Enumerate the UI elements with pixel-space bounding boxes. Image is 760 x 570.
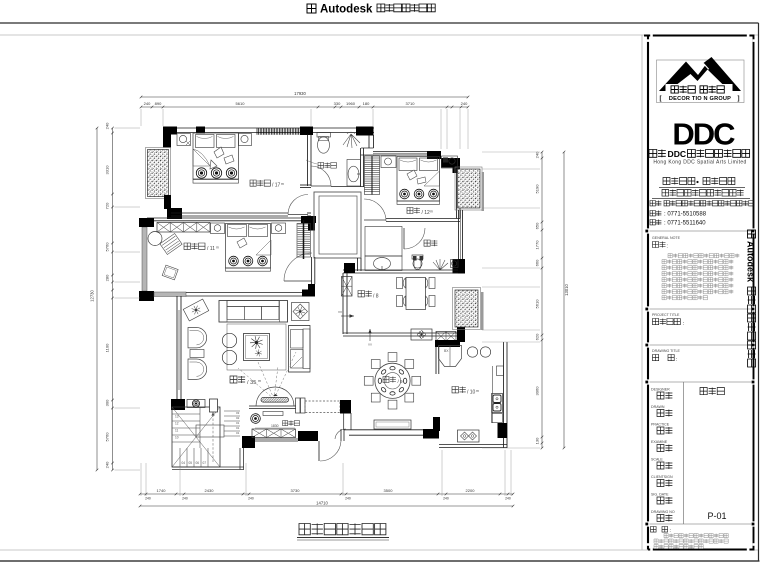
svg-text:XX: XX xyxy=(368,343,372,347)
svg-text:CLIENTSIGN: CLIENTSIGN xyxy=(651,475,673,479)
svg-text:: 0771-5510588: : 0771-5510588 xyxy=(664,212,707,218)
svg-text:5760: 5760 xyxy=(105,432,110,442)
svg-text:3730: 3730 xyxy=(291,488,301,493)
svg-text:05: 05 xyxy=(189,461,193,465)
svg-text:/ 35: / 35 xyxy=(247,380,256,386)
svg-text:1740: 1740 xyxy=(157,488,167,493)
svg-text:m: m xyxy=(216,246,219,250)
svg-text:01: 01 xyxy=(236,421,240,425)
svg-text:1830: 1830 xyxy=(271,424,279,428)
svg-text:]: ] xyxy=(738,96,740,102)
svg-text:280: 280 xyxy=(105,274,110,281)
svg-text:720: 720 xyxy=(105,202,110,209)
svg-text:240: 240 xyxy=(182,497,188,501)
svg-text:DDC: DDC xyxy=(668,149,687,159)
svg-text:XX: XX xyxy=(338,310,342,314)
svg-text:01: 01 xyxy=(236,426,240,430)
svg-text:300: 300 xyxy=(105,399,110,406)
svg-text:m: m xyxy=(476,389,479,393)
svg-text:650: 650 xyxy=(535,222,540,229)
svg-text:240: 240 xyxy=(248,497,254,501)
svg-text:m: m xyxy=(430,210,433,214)
svg-text:DRAWING TITLE: DRAWING TITLE xyxy=(652,349,681,353)
svg-text:3310: 3310 xyxy=(105,165,110,175)
svg-text:DDC: DDC xyxy=(672,117,735,152)
svg-text:/ 17: / 17 xyxy=(272,183,281,189)
svg-text::: : xyxy=(667,244,668,250)
svg-text:890: 890 xyxy=(155,101,162,106)
svg-text:/ 9: / 9 xyxy=(398,379,404,384)
svg-text:240: 240 xyxy=(505,497,511,501)
svg-text:/ 12: / 12 xyxy=(422,210,431,216)
svg-text:m: m xyxy=(258,379,261,383)
svg-text:DRAWING NO: DRAWING NO xyxy=(651,510,675,514)
svg-text:240: 240 xyxy=(144,101,151,106)
svg-text:1100: 1100 xyxy=(105,343,110,352)
svg-text:DRAWN: DRAWN xyxy=(651,405,665,409)
svg-text:3060: 3060 xyxy=(535,386,540,396)
svg-text:3710: 3710 xyxy=(406,101,416,106)
svg-text:GENERAL NOTE: GENERAL NOTE xyxy=(652,236,681,240)
svg-text:DECOR TIO N GROUP: DECOR TIO N GROUP xyxy=(669,96,731,102)
svg-text:660: 660 xyxy=(535,259,540,266)
svg-text:5610: 5610 xyxy=(535,299,540,309)
svg-text:P-01: P-01 xyxy=(707,511,726,521)
svg-text:10: 10 xyxy=(175,436,179,440)
svg-text:13010: 13010 xyxy=(564,284,569,296)
svg-text:13: 13 xyxy=(175,415,179,419)
svg-text:03: 03 xyxy=(236,411,240,415)
svg-text:130: 130 xyxy=(535,437,540,444)
svg-text:240: 240 xyxy=(145,497,151,501)
svg-text:m: m xyxy=(281,182,284,186)
svg-text:/ 8: / 8 xyxy=(373,294,379,300)
svg-text:3500: 3500 xyxy=(384,488,394,493)
svg-text:06: 06 xyxy=(196,461,200,465)
svg-text::: : xyxy=(670,528,671,534)
svg-text:330: 330 xyxy=(334,101,341,106)
svg-text:12730: 12730 xyxy=(90,290,95,302)
svg-text:14710: 14710 xyxy=(316,501,328,506)
svg-text:240: 240 xyxy=(345,497,351,501)
svg-text:/ 10: / 10 xyxy=(467,390,476,396)
svg-text:Hong Kong DDC Spatial Arts Lim: Hong Kong DDC Spatial Arts Limited xyxy=(653,160,746,166)
svg-text:2430: 2430 xyxy=(205,488,215,493)
svg-text:620: 620 xyxy=(535,333,540,340)
svg-text:17930: 17930 xyxy=(294,91,306,96)
svg-text:2200: 2200 xyxy=(466,488,476,493)
svg-text:07: 07 xyxy=(203,461,207,465)
svg-text:SIG. DATE: SIG. DATE xyxy=(651,493,669,497)
svg-text:: 0771-5511640: : 0771-5511640 xyxy=(664,221,706,227)
svg-text:[: [ xyxy=(660,96,662,102)
svg-text:5610: 5610 xyxy=(236,101,246,106)
svg-text:PROJECT TITLE: PROJECT TITLE xyxy=(652,313,680,317)
svg-text:DESIGNER: DESIGNER xyxy=(651,388,670,392)
svg-text:12: 12 xyxy=(175,422,179,426)
svg-text:5190: 5190 xyxy=(535,184,540,194)
svg-text:240: 240 xyxy=(461,101,468,106)
svg-text:240: 240 xyxy=(443,497,449,501)
svg-text:180: 180 xyxy=(363,101,370,106)
svg-text:SCALE: SCALE xyxy=(651,458,663,462)
svg-text:PRACTICE: PRACTICE xyxy=(651,423,670,427)
svg-text:EXAMINE: EXAMINE xyxy=(651,440,668,444)
svg-text:01: 01 xyxy=(236,431,240,435)
svg-text:11: 11 xyxy=(175,429,179,433)
svg-text:BX: BX xyxy=(444,349,449,353)
svg-text::: : xyxy=(676,357,678,363)
svg-text:/ 11: / 11 xyxy=(207,246,215,252)
svg-text:Autodesk: Autodesk xyxy=(746,241,756,283)
svg-text:240: 240 xyxy=(105,461,110,468)
svg-text:02: 02 xyxy=(236,416,240,420)
svg-text:1960: 1960 xyxy=(346,101,356,106)
svg-text:04: 04 xyxy=(182,461,186,465)
svg-text::: : xyxy=(683,321,685,327)
svg-text:1770: 1770 xyxy=(535,240,540,250)
svg-text:Autodesk: Autodesk xyxy=(320,4,373,16)
svg-text:240: 240 xyxy=(105,122,110,129)
svg-text:5760: 5760 xyxy=(105,242,110,252)
